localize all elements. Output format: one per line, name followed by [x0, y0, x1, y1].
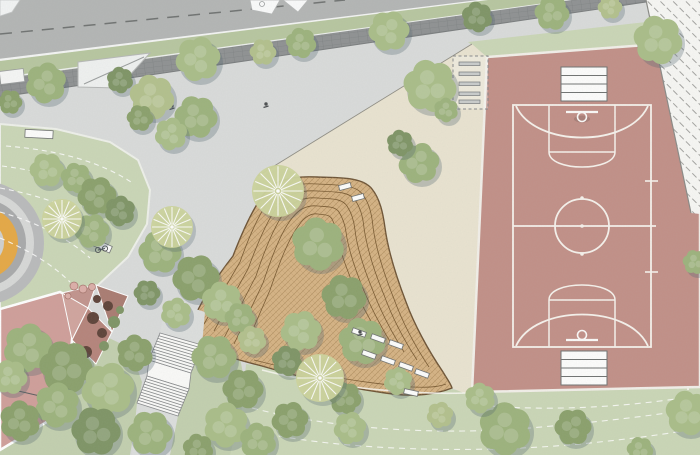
- site-plan-canvas: [0, 0, 700, 455]
- paper-grain-overlay: [0, 0, 700, 455]
- site-plan-svg: [0, 0, 700, 455]
